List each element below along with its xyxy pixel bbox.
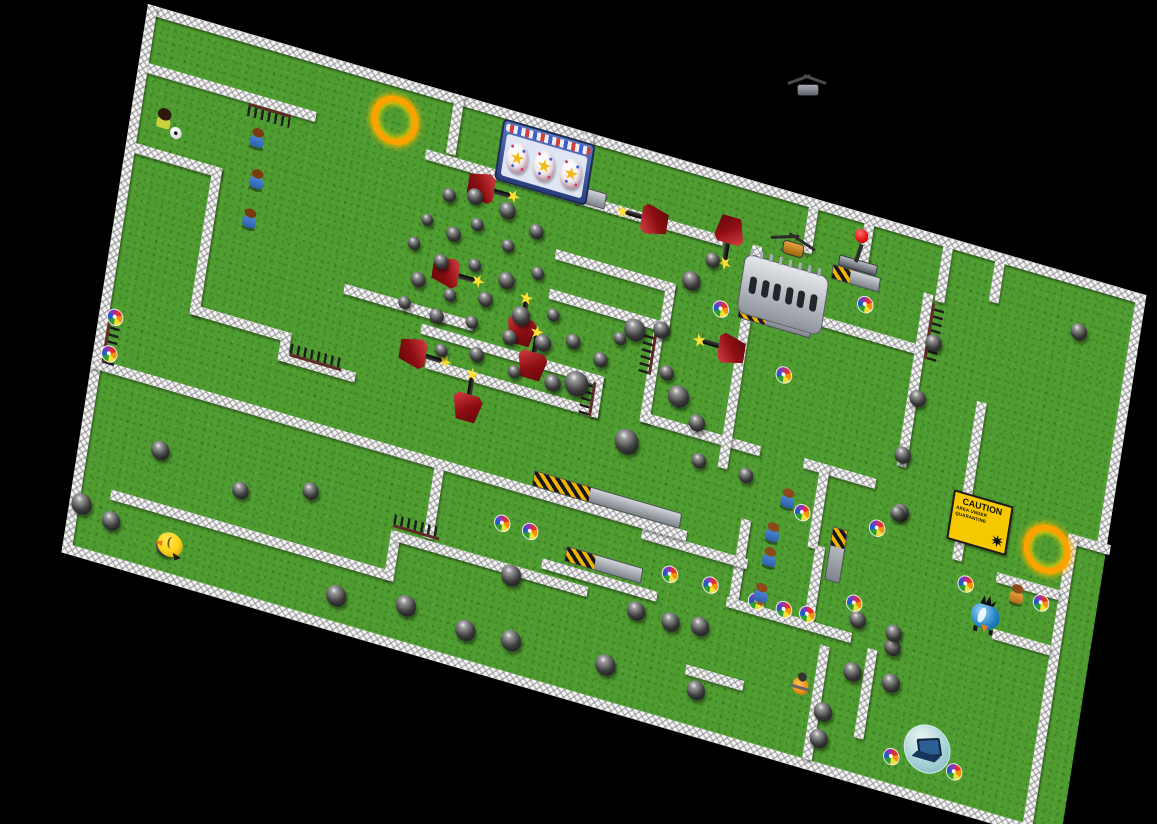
pinwheel-center <box>107 351 111 356</box>
slot <box>772 283 781 302</box>
pinwheel-center <box>667 571 671 576</box>
egg-icon <box>504 140 530 176</box>
egg-speckles <box>538 152 541 156</box>
kid-character[interactable] <box>763 520 782 546</box>
bluebird-character[interactable] <box>969 593 1003 635</box>
egg-speckles <box>565 160 568 164</box>
pinwheel-center <box>718 306 722 311</box>
star-icon <box>563 165 579 183</box>
game-viewport[interactable]: CAUTIONAREA UNDERQUARANTINE <box>0 0 1157 824</box>
egg-speckles <box>511 144 514 148</box>
pinwheel-center <box>805 611 809 616</box>
kid-character[interactable] <box>240 207 259 233</box>
pinwheel-center <box>500 520 504 525</box>
ball-patch <box>174 131 178 136</box>
pinwheel-center <box>781 372 785 377</box>
pinwheel-center <box>781 606 785 611</box>
star-icon <box>509 149 525 167</box>
egg-icon <box>558 156 584 192</box>
cannon-barrel <box>702 338 719 348</box>
cannon-body <box>713 330 746 368</box>
pinwheel-center <box>952 769 956 774</box>
slot <box>748 276 757 295</box>
slot <box>784 287 793 306</box>
slot <box>796 290 805 309</box>
pinwheel-center <box>874 525 878 530</box>
pinwheel-center <box>708 582 712 587</box>
kid-character[interactable] <box>778 487 797 513</box>
slot <box>760 279 769 298</box>
kid-character[interactable] <box>1007 582 1026 608</box>
kid-character[interactable] <box>248 126 267 152</box>
cannon-barrel <box>467 377 474 395</box>
cannon-barrel <box>494 189 511 199</box>
cannon-turret <box>448 371 488 426</box>
gear-burst-icon <box>990 533 1003 548</box>
bird-f1 <box>973 625 978 631</box>
slot <box>809 294 818 313</box>
cannon-barrel <box>458 273 475 283</box>
kid-character[interactable] <box>247 167 266 193</box>
pinwheel-center <box>863 301 867 306</box>
egg-icon <box>531 148 557 184</box>
kid-character[interactable] <box>751 581 770 607</box>
cannon-barrel <box>722 243 729 261</box>
pinwheel-center <box>528 528 532 533</box>
bird-f2 <box>988 630 993 636</box>
pinwheel-center <box>800 509 804 514</box>
pinwheel-center <box>1038 600 1042 605</box>
cannon-body <box>636 202 669 240</box>
scooter-kid-character[interactable] <box>789 670 812 701</box>
cannon-body <box>398 333 431 371</box>
pinwheel-center <box>889 753 893 758</box>
pinwheel-center <box>963 581 967 586</box>
maze-map[interactable]: CAUTIONAREA UNDERQUARANTINE <box>61 4 1146 824</box>
cannon-barrel <box>625 209 642 219</box>
drone-bd <box>797 84 819 96</box>
crusher-slots <box>748 276 818 312</box>
pinwheel-center <box>112 314 116 319</box>
drone <box>790 78 824 100</box>
kid-character[interactable] <box>760 545 779 571</box>
hazard-stripes-icon <box>831 527 847 548</box>
pinwheel-center <box>852 600 856 605</box>
star-icon <box>536 157 552 175</box>
